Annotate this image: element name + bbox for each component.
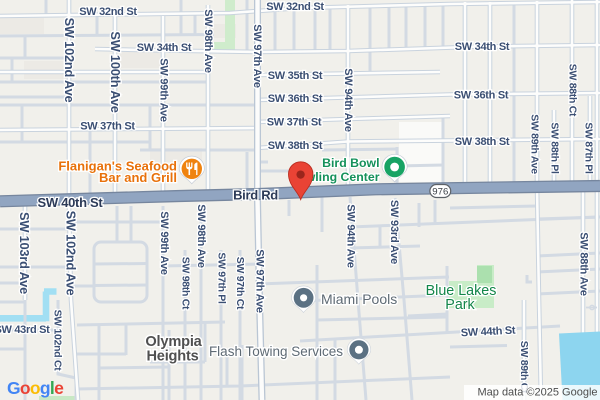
svg-text:SW 43rd St: SW 43rd St [0,324,50,336]
svg-text:SW 37th St: SW 37th St [267,117,322,129]
svg-text:SW 38th St: SW 38th St [455,136,510,148]
svg-text:SW 32nd St: SW 32nd St [266,1,324,13]
svg-text:Bird Rd: Bird Rd [233,188,278,203]
svg-text:SW 97th Ave: SW 97th Ave [254,249,266,313]
svg-text:Park: Park [445,297,475,313]
svg-text:Bar and Grill: Bar and Grill [99,170,177,185]
svg-text:SW 36th St: SW 36th St [454,90,509,102]
svg-text:SW 94th Ave: SW 94th Ave [345,204,357,268]
svg-text:SW 35th St: SW 35th St [268,70,323,82]
svg-text:SW 88th Pl: SW 88th Pl [549,122,561,174]
svg-text:976: 976 [432,186,448,197]
svg-text:SW 32nd St: SW 32nd St [79,6,137,18]
svg-text:SW 89th Ave: SW 89th Ave [529,114,541,174]
svg-text:SW 97th Pl: SW 97th Pl [216,252,228,304]
svg-text:Flash Towing Services: Flash Towing Services [209,344,343,359]
svg-text:SW 102nd Ave: SW 102nd Ave [64,211,79,296]
svg-text:SW 93rd Ave: SW 93rd Ave [388,200,400,264]
svg-text:SW 98th Ct: SW 98th Ct [180,257,192,310]
svg-text:SW 97th Ave: SW 97th Ave [251,24,263,88]
svg-text:SW 98th Ave: SW 98th Ave [202,9,214,73]
svg-text:SW 103rd Ave: SW 103rd Ave [17,212,32,294]
svg-text:Map data ©2025 Google: Map data ©2025 Google [477,387,597,399]
svg-text:SW 37th St: SW 37th St [80,121,135,133]
svg-text:SW 87th Pl: SW 87th Pl [583,122,595,174]
svg-text:SW 34th St: SW 34th St [137,42,192,54]
svg-text:SW 36th St: SW 36th St [268,93,323,105]
svg-text:Bird Bowl: Bird Bowl [322,156,379,170]
svg-text:SW 97th Ct: SW 97th Ct [234,257,246,310]
svg-text:Heights: Heights [146,349,198,365]
svg-text:Miami Pools: Miami Pools [321,291,397,307]
svg-text:SW 98th Ave: SW 98th Ave [195,204,207,268]
svg-text:SW 88th Ave: SW 88th Ave [578,232,590,296]
svg-text:SW 40th St: SW 40th St [38,195,104,210]
svg-text:SW 100th Ave: SW 100th Ave [108,31,123,112]
svg-text:SW 99th Ave: SW 99th Ave [158,58,170,122]
svg-text:SW 88th Ct: SW 88th Ct [567,64,579,117]
svg-text:SW 102nd Ave: SW 102nd Ave [62,18,77,103]
svg-text:SW 94th Ave: SW 94th Ave [342,68,354,132]
svg-text:SW 34th St: SW 34th St [455,41,510,53]
svg-text:Google: Google [7,378,64,398]
svg-text:SW 99th Ave: SW 99th Ave [158,211,170,275]
svg-text:SW 38th St: SW 38th St [268,140,323,152]
svg-text:SW 102nd Ct: SW 102nd Ct [52,310,64,372]
